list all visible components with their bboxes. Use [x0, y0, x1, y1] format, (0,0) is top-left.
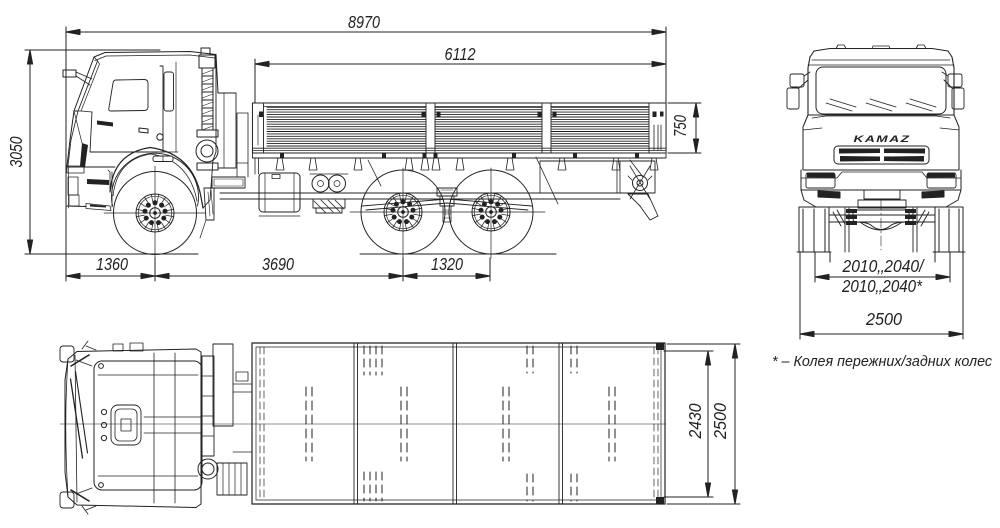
- svg-text:2010‚‚2040*: 2010‚‚2040*: [841, 276, 923, 296]
- svg-text:8970: 8970: [348, 12, 380, 32]
- svg-text:2430: 2430: [685, 403, 705, 439]
- svg-text:1360: 1360: [96, 254, 128, 274]
- svg-text:3690: 3690: [262, 254, 294, 274]
- svg-text:3050: 3050: [6, 136, 26, 167]
- svg-text:2500: 2500: [710, 403, 730, 440]
- svg-text:KAMAZ: KAMAZ: [854, 134, 911, 144]
- svg-text:* – Колея пережних/задних коле: * – Колея пережних/задних колес: [772, 353, 992, 370]
- svg-text:2500: 2500: [865, 309, 902, 329]
- svg-text:750: 750: [670, 115, 690, 137]
- svg-text:1320: 1320: [431, 254, 463, 274]
- svg-text:2010‚‚2040/: 2010‚‚2040/: [842, 256, 926, 276]
- svg-text:6112: 6112: [445, 44, 476, 64]
